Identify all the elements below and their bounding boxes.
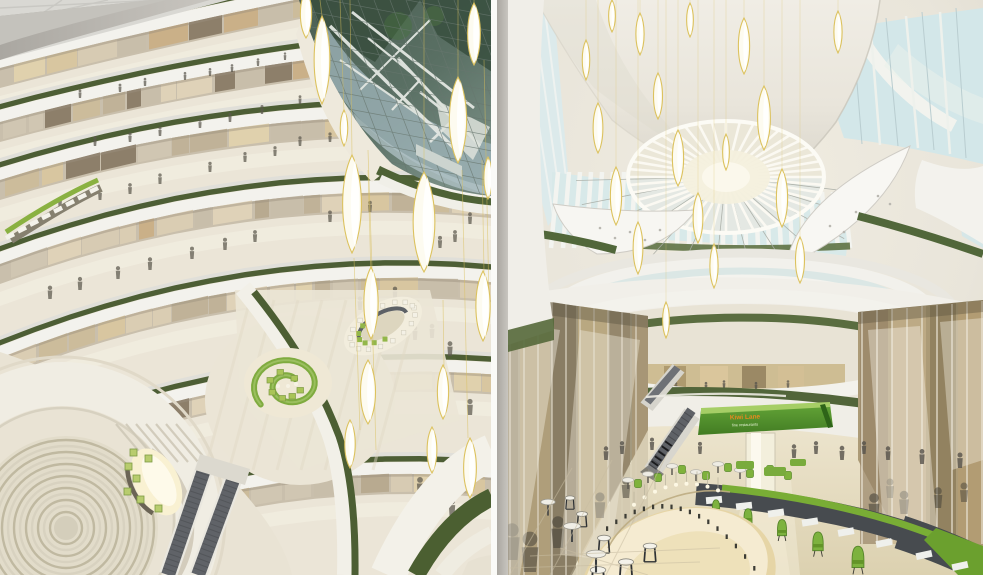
svg-text:Kiwi Lane: Kiwi Lane — [730, 413, 761, 421]
